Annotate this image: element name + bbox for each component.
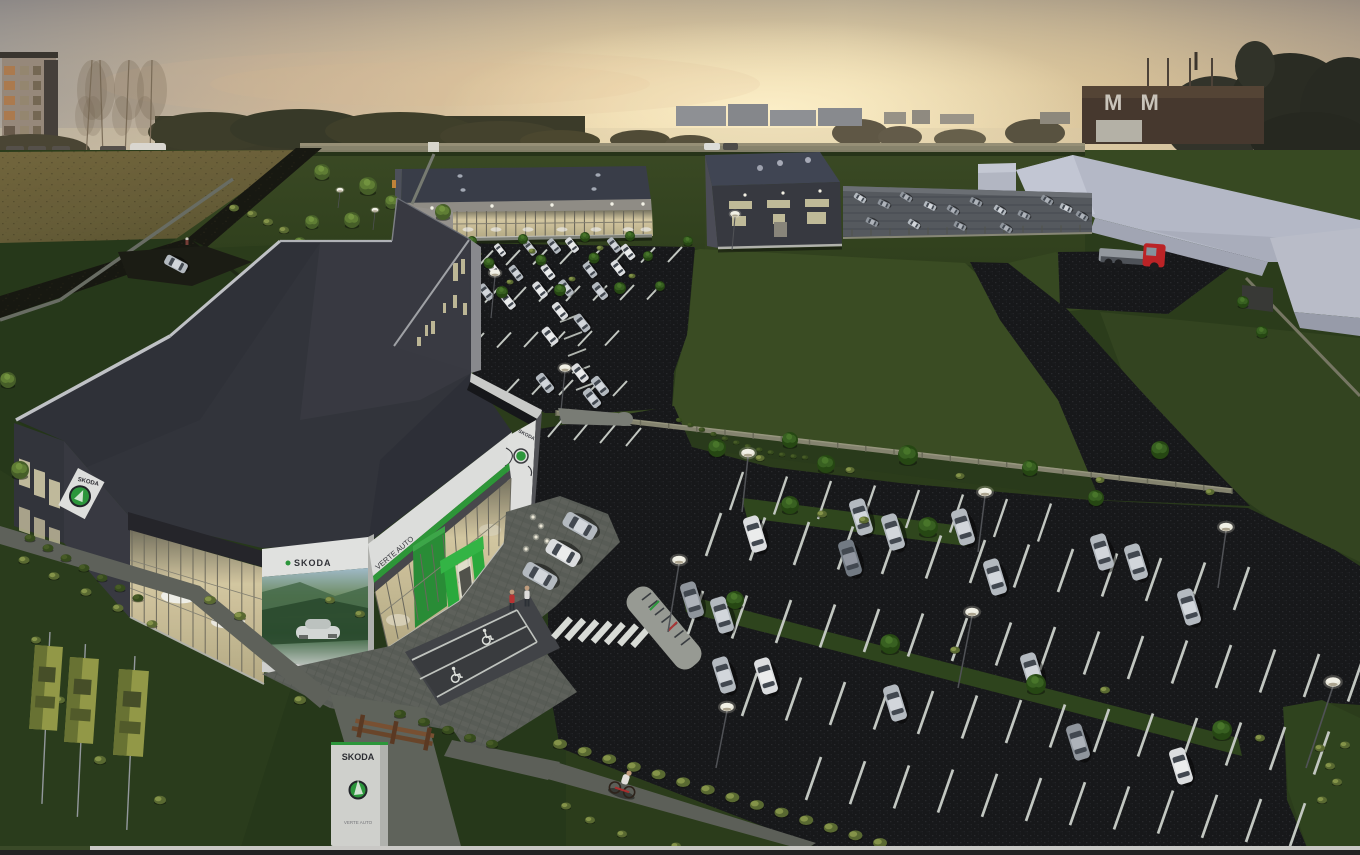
svg-text:M M: M M: [1104, 90, 1165, 115]
